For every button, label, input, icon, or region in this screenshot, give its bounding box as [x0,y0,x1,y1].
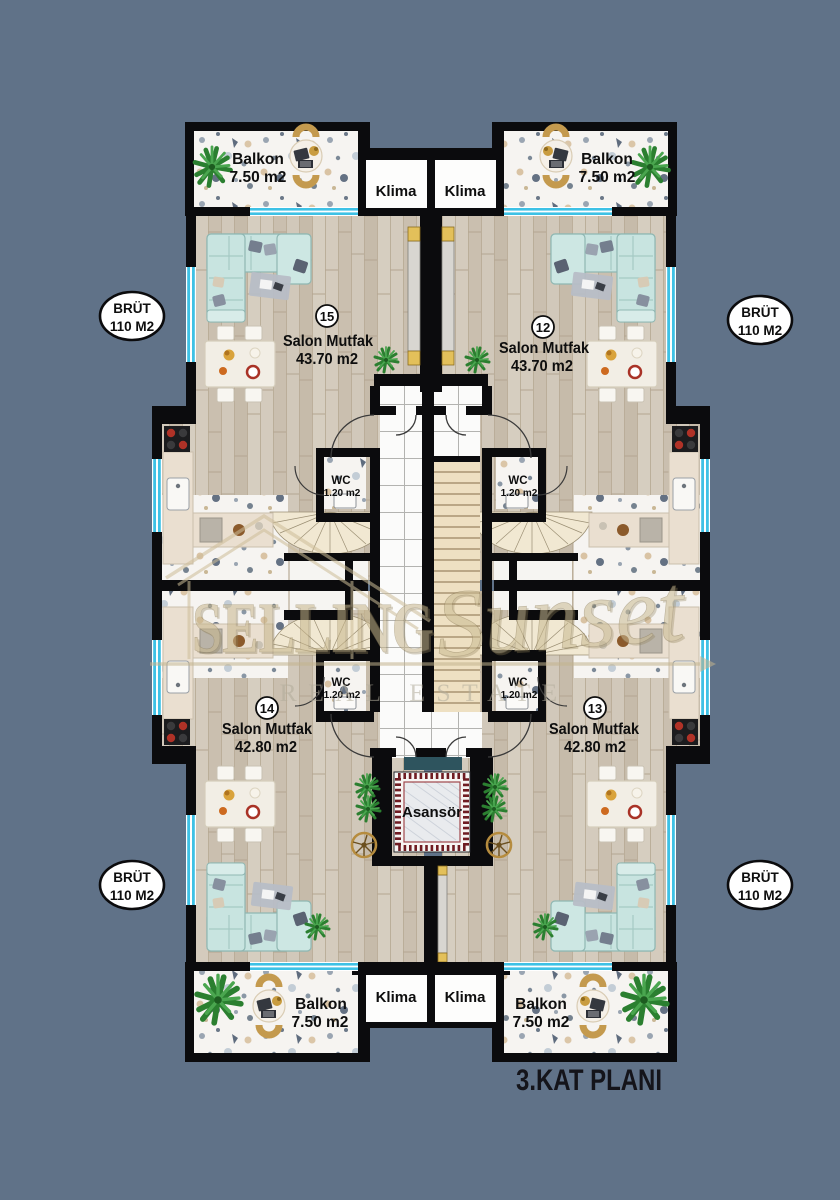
svg-text:Klima: Klima [445,989,487,1006]
svg-text:Salon Mutfak: Salon Mutfak [549,721,639,738]
svg-text:BRÜT: BRÜT [113,301,151,316]
svg-text:REAL ESTATE: REAL ESTATE [280,680,569,707]
svg-text:1.20 m2: 1.20 m2 [501,488,538,499]
svg-text:43.70 m2: 43.70 m2 [511,358,573,375]
svg-text:Balkon: Balkon [295,996,347,1013]
svg-text:110 M2: 110 M2 [110,888,154,903]
svg-text:Klima: Klima [376,989,418,1006]
svg-text:Klima: Klima [376,183,418,200]
svg-text:Balkon: Balkon [232,151,284,168]
svg-text:Sunset: Sunset [432,553,689,677]
svg-text:Asansör: Asansör [402,804,462,821]
svg-text:7.50 m2: 7.50 m2 [292,1014,349,1031]
svg-text:15: 15 [320,309,334,324]
svg-text:42.80 m2: 42.80 m2 [235,739,297,756]
svg-text:12: 12 [536,320,550,335]
svg-text:BRÜT: BRÜT [113,870,151,885]
svg-text:Salon Mutfak: Salon Mutfak [283,333,373,350]
svg-text:WC: WC [508,475,527,487]
svg-text:Balkon: Balkon [581,151,633,168]
svg-text:3.KAT PLANI: 3.KAT PLANI [516,1064,662,1097]
svg-text:SELLING: SELLING [192,588,434,668]
svg-text:7.50 m2: 7.50 m2 [579,169,636,186]
svg-text:13: 13 [588,701,602,716]
svg-text:14: 14 [260,701,275,716]
svg-text:BRÜT: BRÜT [741,305,779,320]
svg-text:43.70 m2: 43.70 m2 [296,351,358,368]
svg-text:1.20 m2: 1.20 m2 [324,488,361,499]
svg-text:7.50 m2: 7.50 m2 [513,1014,570,1031]
svg-text:110 M2: 110 M2 [738,888,782,903]
svg-text:BRÜT: BRÜT [741,870,779,885]
svg-text:Salon Mutfak: Salon Mutfak [499,340,589,357]
svg-text:Klima: Klima [445,183,487,200]
svg-text:42.80 m2: 42.80 m2 [564,739,626,756]
svg-text:110 M2: 110 M2 [110,319,154,334]
svg-text:Salon Mutfak: Salon Mutfak [222,721,312,738]
svg-text:WC: WC [331,475,350,487]
svg-text:110 M2: 110 M2 [738,323,782,338]
svg-text:Balkon: Balkon [515,996,567,1013]
svg-text:7.50 m2: 7.50 m2 [230,169,287,186]
